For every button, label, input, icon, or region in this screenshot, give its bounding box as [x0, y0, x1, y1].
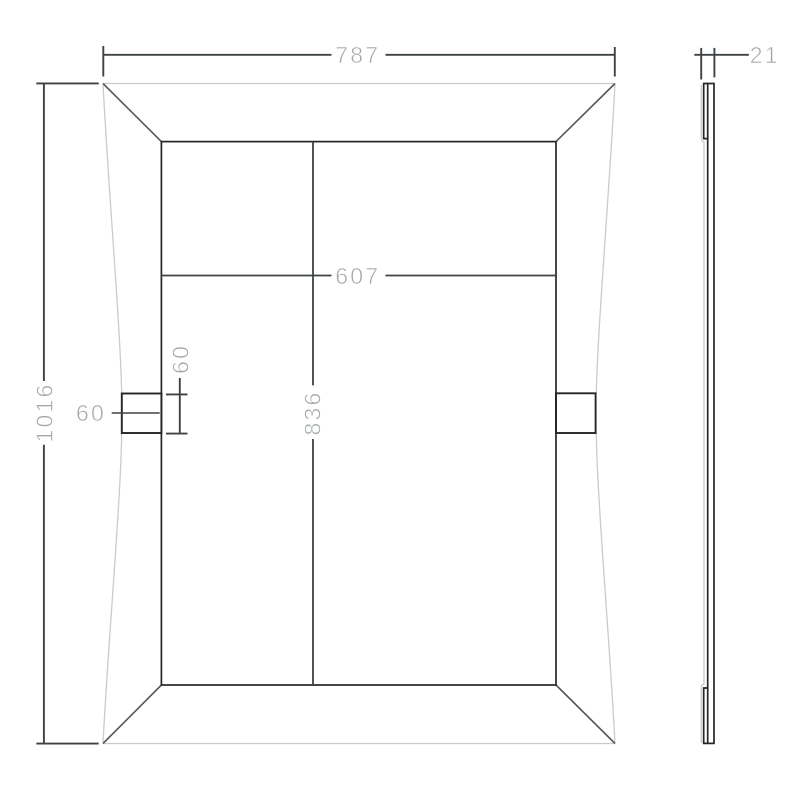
svg-text:836: 836 — [299, 391, 325, 436]
svg-text:60: 60 — [167, 344, 193, 374]
svg-text:21: 21 — [750, 42, 780, 68]
svg-text:1016: 1016 — [31, 383, 57, 443]
svg-text:607: 607 — [335, 263, 380, 289]
svg-text:60: 60 — [76, 400, 106, 426]
svg-text:787: 787 — [335, 42, 380, 68]
